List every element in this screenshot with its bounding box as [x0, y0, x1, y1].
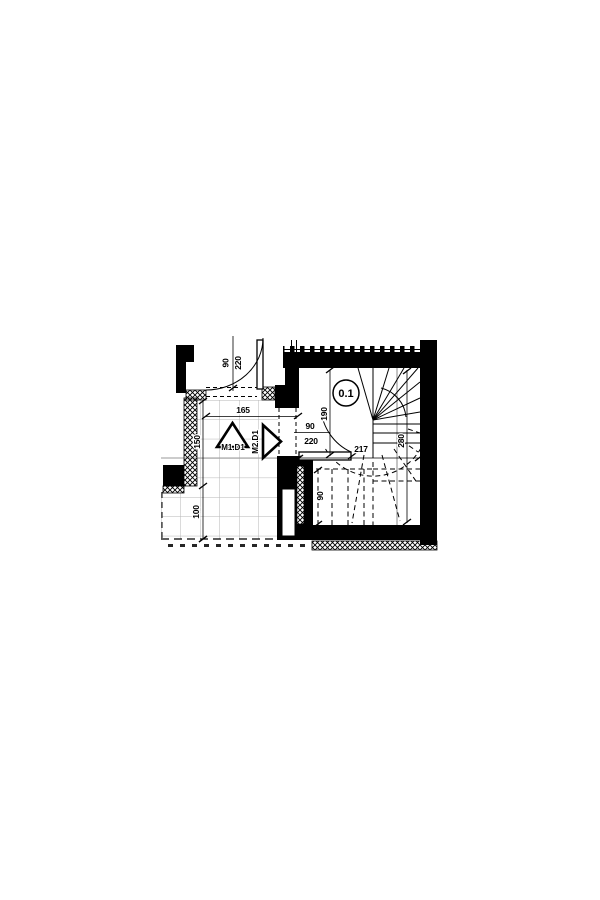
room-number-label: 0.1 [338, 388, 353, 400]
wall-hall-left-block [163, 465, 184, 486]
stair-walkline-arc [381, 388, 406, 417]
room-number-badge: 0.1 [333, 380, 359, 406]
dim-190-label: 190 [319, 407, 329, 421]
dim-280-label: 280 [396, 434, 406, 448]
top-door-height-label: 220 [233, 356, 243, 370]
wall-hall-top-right [275, 385, 285, 408]
top-tick-band [283, 346, 437, 352]
wall-top-left [176, 345, 194, 393]
dim-217-label: 217 [354, 444, 368, 454]
marker-m2-label: M2.D1 [251, 430, 260, 454]
dim-entry-clear: 190 [319, 367, 334, 458]
insulation-top-mid [262, 387, 275, 400]
wall-stair-right [420, 340, 437, 545]
stair-door-width-label: 90 [305, 421, 315, 431]
wall-niche [282, 489, 295, 536]
insulation-bottom-strip [312, 541, 437, 550]
floor-plan-canvas: 90 220 90 220 165 150 100 217 [0, 0, 600, 900]
insulation-left-block [163, 486, 184, 493]
wall-stair-top [283, 352, 437, 368]
top-door: 90 220 [206, 336, 263, 397]
stair-door-leaf [299, 452, 351, 460]
wall-stair-left-stub [285, 368, 299, 408]
stair-door-height-label: 220 [304, 436, 318, 446]
dim-100-label: 100 [191, 505, 201, 519]
top-door-width-label: 90 [221, 358, 231, 368]
wall-stair-bottom [300, 525, 437, 540]
marker-m1-label: M1.D1 [221, 443, 245, 452]
dim-flight-width: 90 [314, 467, 325, 527]
insulation-mid-column [297, 466, 304, 524]
dim-165-label: 165 [236, 405, 250, 415]
dim-90-label: 90 [315, 491, 325, 501]
floor-plan-page: 90 220 90 220 165 150 100 217 [0, 0, 600, 900]
dim-150-label: 150 [192, 435, 202, 449]
